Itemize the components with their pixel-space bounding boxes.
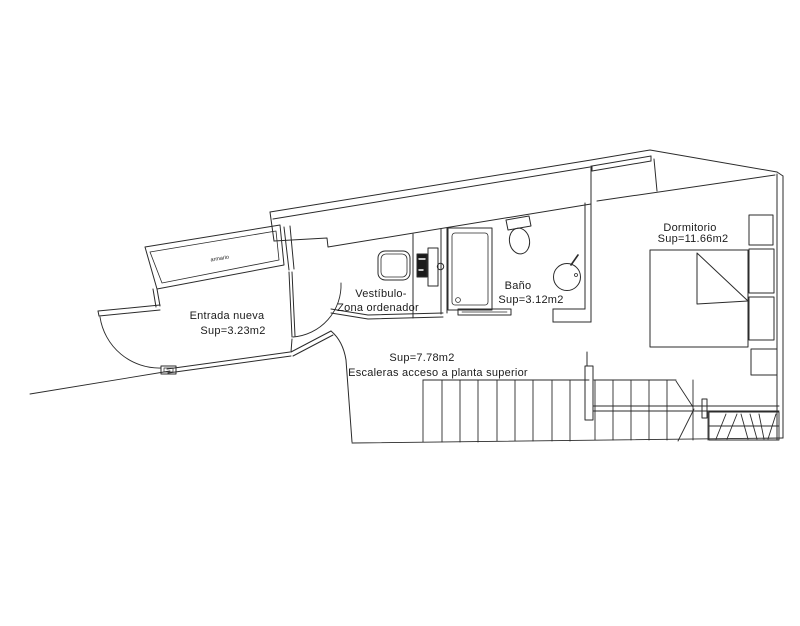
floor-plan-page: armario Entrada nueva Sup=3.23m2 Vestíbu… — [0, 0, 800, 626]
monitor-symbol — [428, 248, 438, 286]
floor-plan-drawing: armario Entrada nueva Sup=3.23m2 Vestíbu… — [0, 0, 800, 626]
escaleras-area-label: Sup=7.78m2 — [389, 352, 454, 364]
bano-area-label: Sup=3.12m2 — [498, 294, 563, 306]
entrada-area-label: Sup=3.23m2 — [200, 325, 265, 337]
vestibulo-label: Vestíbulo- — [355, 288, 407, 300]
computer-tower-symbol — [417, 254, 427, 277]
dormitorio-area-label: Sup=11.66m2 — [658, 233, 729, 245]
escaleras-label: Escaleras acceso a planta superior — [348, 367, 528, 379]
entrada-label: Entrada nueva — [190, 310, 265, 322]
vestibulo-zone-label: Zona ordenador — [337, 302, 419, 314]
bano-label: Baño — [505, 280, 532, 292]
